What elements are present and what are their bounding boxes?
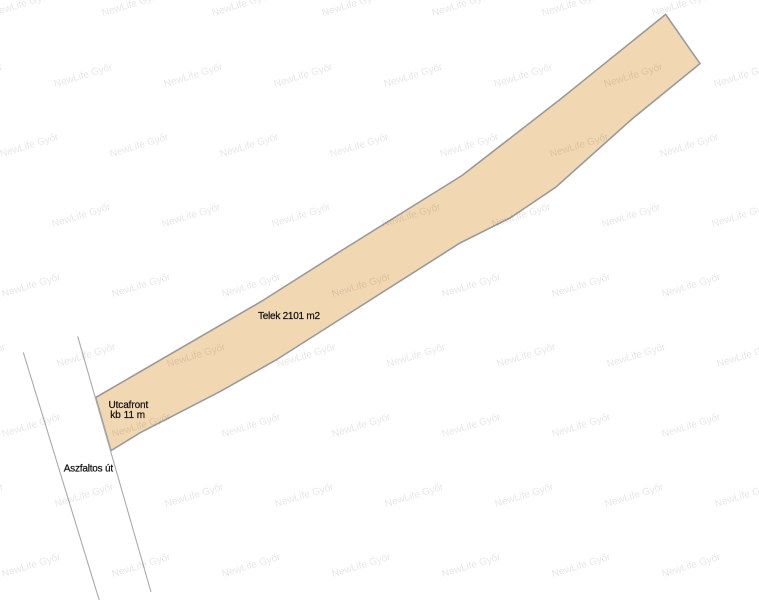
svg-text:Aszfaltos út: Aszfaltos út (64, 463, 114, 474)
svg-text:kb 11 m: kb 11 m (110, 410, 145, 421)
svg-text:Telek 2101 m2: Telek 2101 m2 (258, 311, 320, 322)
